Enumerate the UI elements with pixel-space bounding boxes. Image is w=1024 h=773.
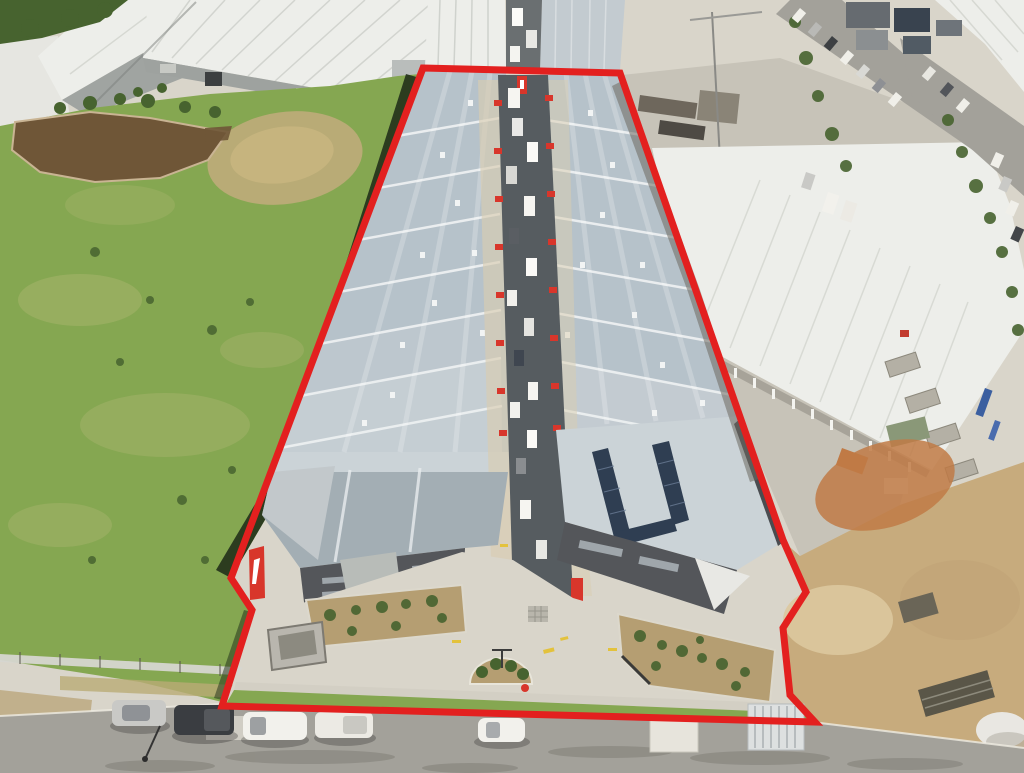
red-bollard [521,684,529,692]
aerial-photo-canvas [0,0,1024,773]
warehouse-b-door [205,72,222,86]
sand-mound [783,585,893,655]
aerial-photo [0,0,1024,773]
tactile-pavers [528,606,548,622]
awning [160,64,176,73]
bin-store [268,622,326,670]
north-roof-left [425,0,506,70]
north-roof-right [540,0,625,70]
banner-glyph [520,80,524,89]
crossover-slab [650,720,698,752]
pond-arm [205,126,232,142]
ribbed-canopy [748,704,804,750]
